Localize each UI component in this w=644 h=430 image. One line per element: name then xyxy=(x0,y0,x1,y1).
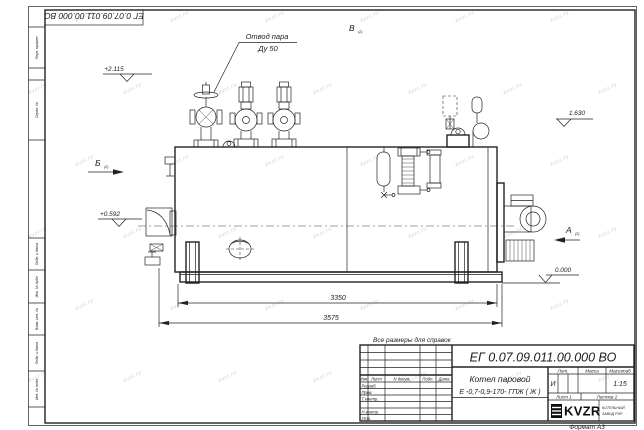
view-marker-b-ref: (2) xyxy=(104,165,108,169)
side-label: Подп. и дата xyxy=(35,243,39,266)
water-level-gauge xyxy=(398,148,441,194)
row-label: Разраб. xyxy=(362,384,377,389)
sheets-total: Листов 2 xyxy=(596,395,618,400)
company-name-line2: ЗАВОД РЭР xyxy=(602,412,623,416)
company-name-line1: КОТЕЛЬНЫЙ xyxy=(602,406,625,410)
scale-header: Масштаб xyxy=(609,369,631,374)
side-label: Инв. № подл. xyxy=(35,378,39,400)
svg-text:0.000: 0.000 xyxy=(555,267,572,274)
elevation-mark-2115: +2.115 xyxy=(103,66,152,82)
svg-text:1.630: 1.630 xyxy=(569,110,586,117)
view-marker-a-ref: (2) xyxy=(575,232,579,236)
safety-valve-1 xyxy=(230,82,262,147)
support-leg-right xyxy=(455,242,468,283)
steam-outlet-valve xyxy=(190,82,222,147)
pressure-gauge-siphon xyxy=(472,97,489,147)
dimension-3575: 3575 xyxy=(323,315,339,322)
row-label: Пров. xyxy=(362,390,373,395)
product-name-line1: Котел паровой xyxy=(470,374,531,384)
burner-unit xyxy=(497,183,546,262)
dome-valve xyxy=(443,96,457,129)
lit-value: И xyxy=(550,381,556,388)
drawing-canvas: Перв. примен. Справ. № Подп. и дата Инв.… xyxy=(0,0,644,430)
steam-dome xyxy=(447,128,469,147)
dimension-3350: 3350 xyxy=(330,295,346,302)
company-logo: KVZR xyxy=(551,404,601,419)
elevation-mark-0000: 0.000 xyxy=(539,267,579,283)
lit-header: Лит. xyxy=(557,369,569,374)
view-marker-a: А xyxy=(565,225,572,235)
top-stamp-designation: ЕГ 0.07.09.011.00.000 ВО xyxy=(44,11,144,21)
format-label: Формат А3 xyxy=(569,424,605,430)
svg-text:+0.592: +0.592 xyxy=(100,211,120,218)
col-header-izm: Изм. xyxy=(360,377,369,382)
side-label: Подп. и дата xyxy=(35,342,39,365)
boiler-drawing xyxy=(138,82,560,283)
designation: ЕГ 0.07.09.011.00.000 ВО xyxy=(470,351,617,365)
support-leg-left xyxy=(186,242,199,283)
sight-glass-gauge xyxy=(377,147,395,198)
mass-header: Масса xyxy=(585,369,599,374)
elevation-mark-1630: 1.630 xyxy=(556,110,593,127)
safety-valve-2 xyxy=(268,82,300,147)
feed-elbow xyxy=(145,208,176,265)
svg-text:+2.115: +2.115 xyxy=(104,66,124,73)
col-header-ndoc: N докум. xyxy=(394,377,411,382)
side-label: Взам. инв. № xyxy=(35,308,39,330)
row-label: Утв. xyxy=(362,416,372,421)
view-marker-v-ref: (2) xyxy=(358,30,362,34)
side-label: Справ. № xyxy=(35,102,39,118)
skid-base xyxy=(180,272,502,282)
manhole xyxy=(226,237,254,261)
drawing-sheet: kvzr.rukvzr.rukvzr.rukvzr.rukvzr.rukvzr.… xyxy=(0,0,644,430)
row-label: Н.контр. xyxy=(362,410,380,415)
col-header-podp: Подп. xyxy=(422,377,433,382)
product-name-line2: Е -0,7-0,9-170- ГПЖ ( Ж ) xyxy=(459,389,540,396)
logo-text: KVZR xyxy=(564,404,601,419)
steam-callout-line2: Ду 50 xyxy=(257,44,278,53)
col-header-data: Дата xyxy=(437,377,450,382)
boiler-body xyxy=(175,147,497,272)
col-header-list: Лист xyxy=(370,377,382,382)
view-marker-v: В xyxy=(349,23,355,33)
left-wall-fitting xyxy=(165,157,175,176)
scale-value: 1:15 xyxy=(613,381,627,388)
sheet-number: Лист 1 xyxy=(555,395,572,400)
title-block: Все размеры для справок Изм. Лист N доку… xyxy=(360,336,634,430)
dimensions: 3350 3575 xyxy=(159,268,502,327)
side-label: Инв. № дубл. xyxy=(35,275,39,297)
lifting-lug xyxy=(223,141,235,147)
view-marker-b: Б xyxy=(95,158,101,168)
elevation-mark-0592: +0.592 xyxy=(98,211,142,227)
row-label: Т.контр. xyxy=(362,397,379,402)
annotations: Отвод пара Ду 50 В (2) Б (2) А (2) +2.11… xyxy=(88,23,593,283)
steam-callout-line1: Отвод пара xyxy=(246,32,289,41)
side-label: Перв. примен. xyxy=(35,36,39,60)
reference-note: Все размеры для справок xyxy=(373,336,452,344)
